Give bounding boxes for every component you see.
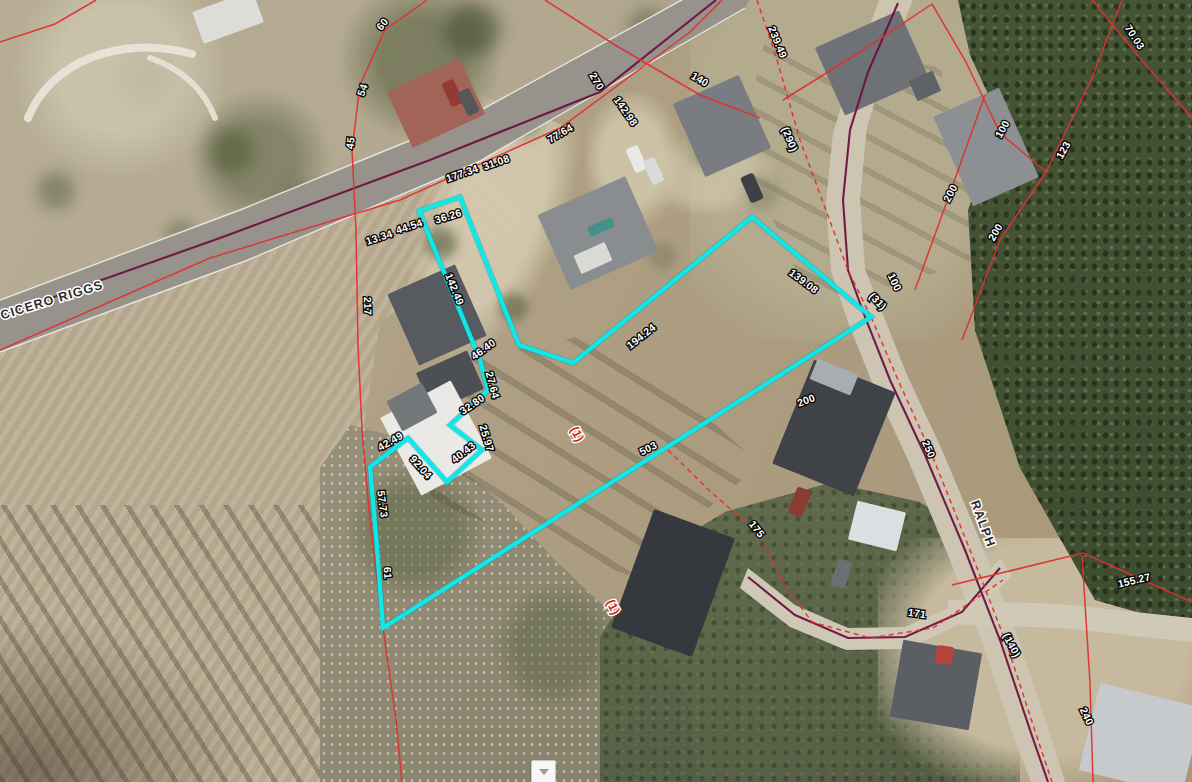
- dimension-label: 60: [374, 16, 391, 33]
- map-controls-collapse-button[interactable]: [531, 760, 556, 782]
- car: [787, 486, 811, 518]
- car: [830, 558, 853, 589]
- building: [673, 75, 771, 177]
- dimension-label: 140: [689, 69, 711, 88]
- dimension-label: 36.26: [433, 206, 463, 225]
- chevron-down-icon: [538, 768, 550, 776]
- dimension-label: 194.24: [624, 321, 658, 351]
- dimension-label: 239.49: [766, 24, 790, 59]
- dimension-label: 123: [1053, 139, 1072, 161]
- car: [740, 172, 764, 203]
- car: [935, 645, 954, 665]
- dimension-label: 44.54: [394, 216, 424, 236]
- dimension-label: 54: [354, 82, 369, 97]
- dimension-label: 57.73: [375, 490, 390, 519]
- boundary-northwest-corner: [0, 0, 96, 42]
- dimension-label: 77.64: [545, 121, 575, 145]
- map-overlay: 605445270142.9877.64177.3431.0836.2613.3…: [0, 0, 1192, 782]
- dimension-label: 217: [362, 297, 375, 316]
- dimension-label: 70.03: [1123, 22, 1148, 51]
- dirt-track: [28, 48, 192, 118]
- building: [848, 501, 906, 552]
- dimension-label: 142.98: [612, 94, 641, 128]
- dimension-label: 155.27: [1116, 570, 1151, 589]
- dirt-track: [150, 58, 215, 118]
- building: [611, 509, 735, 657]
- car: [642, 156, 664, 185]
- building: [1079, 683, 1192, 782]
- dimension-label: 45: [343, 136, 356, 149]
- building: [890, 640, 982, 731]
- dimension-label: 13.34: [364, 227, 394, 247]
- map-canvas[interactable]: 605445270142.9877.64177.3431.0836.2613.3…: [0, 0, 1192, 782]
- boundary-northeast-70: [1092, 0, 1192, 118]
- dimension-label: 171: [907, 606, 927, 620]
- dimension-label: 100: [886, 271, 905, 293]
- dimension-label: 200: [940, 182, 959, 204]
- lot-number-label: (1): [567, 424, 587, 444]
- dimension-label: 200: [985, 221, 1004, 243]
- car: [625, 144, 647, 173]
- dimension-label: 61: [381, 566, 394, 579]
- building: [192, 0, 264, 44]
- dimension-label: 175: [747, 518, 768, 540]
